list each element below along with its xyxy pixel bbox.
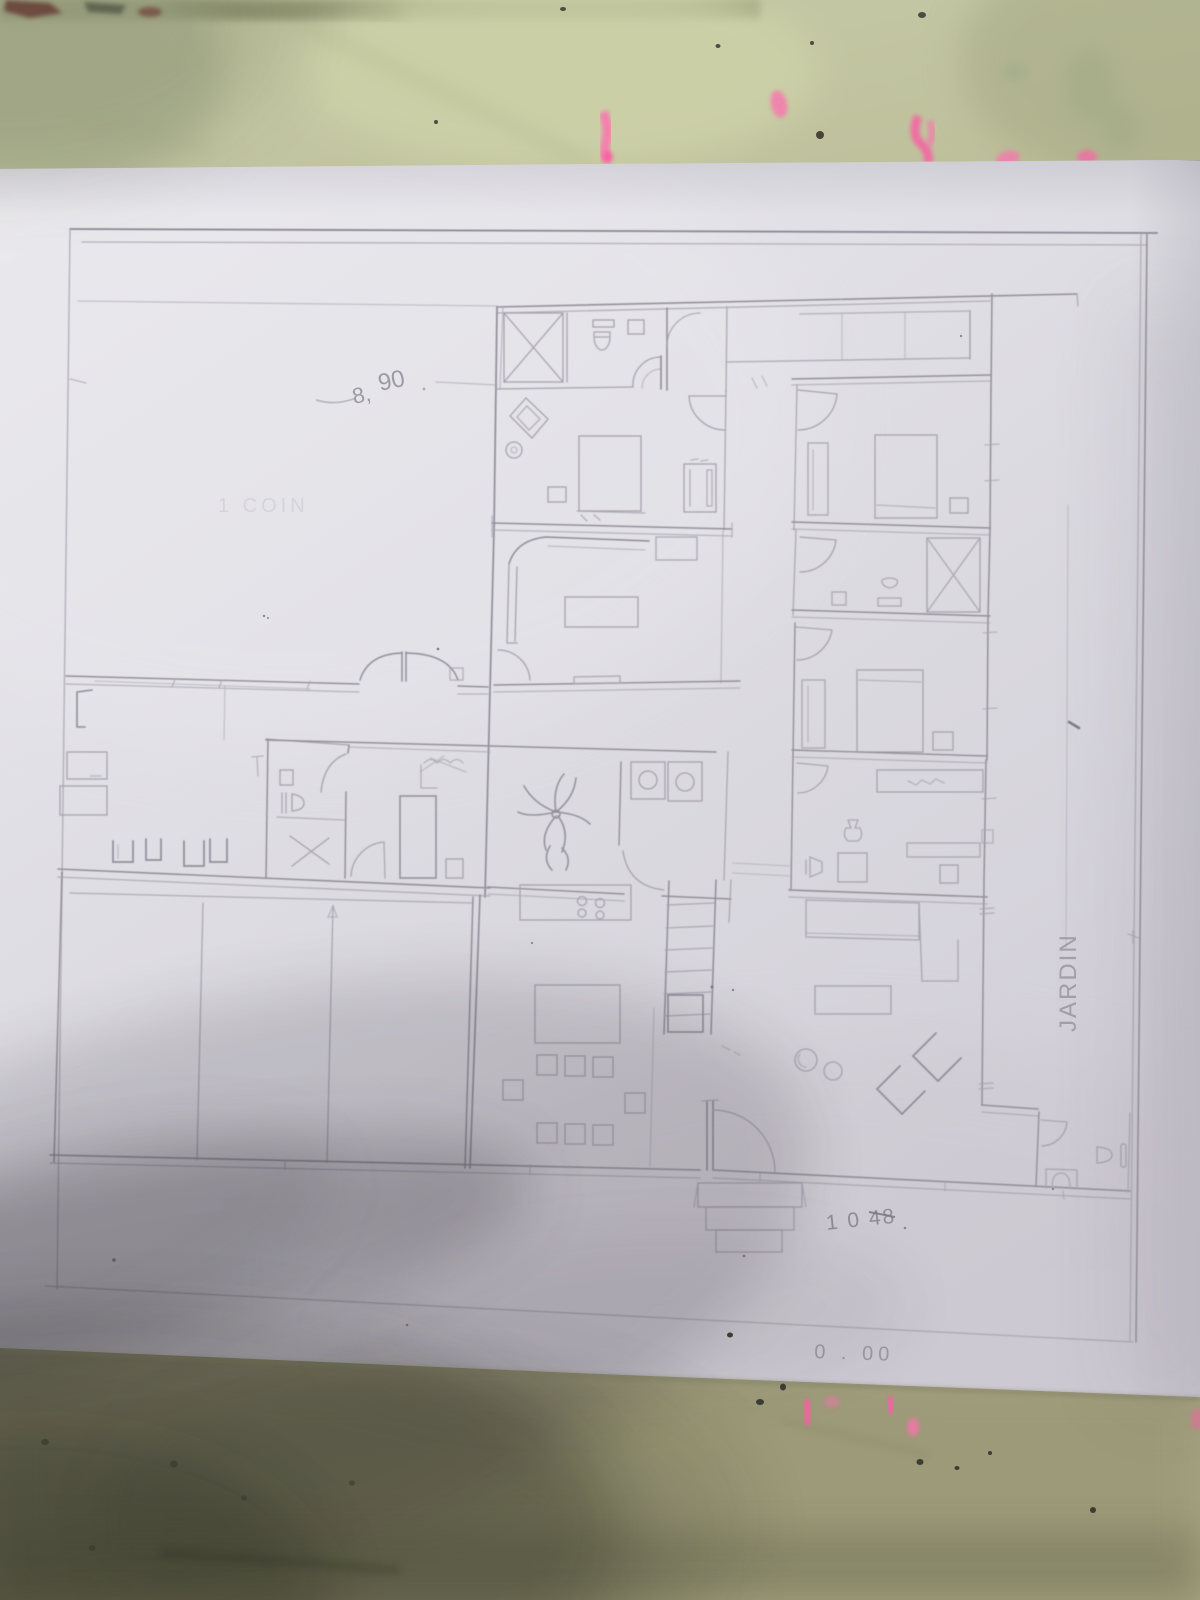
svg-text:JARDIN: JARDIN bbox=[1055, 933, 1082, 1032]
svg-text:90: 90 bbox=[376, 365, 408, 397]
svg-text:1 COIN: 1 COIN bbox=[218, 495, 309, 517]
